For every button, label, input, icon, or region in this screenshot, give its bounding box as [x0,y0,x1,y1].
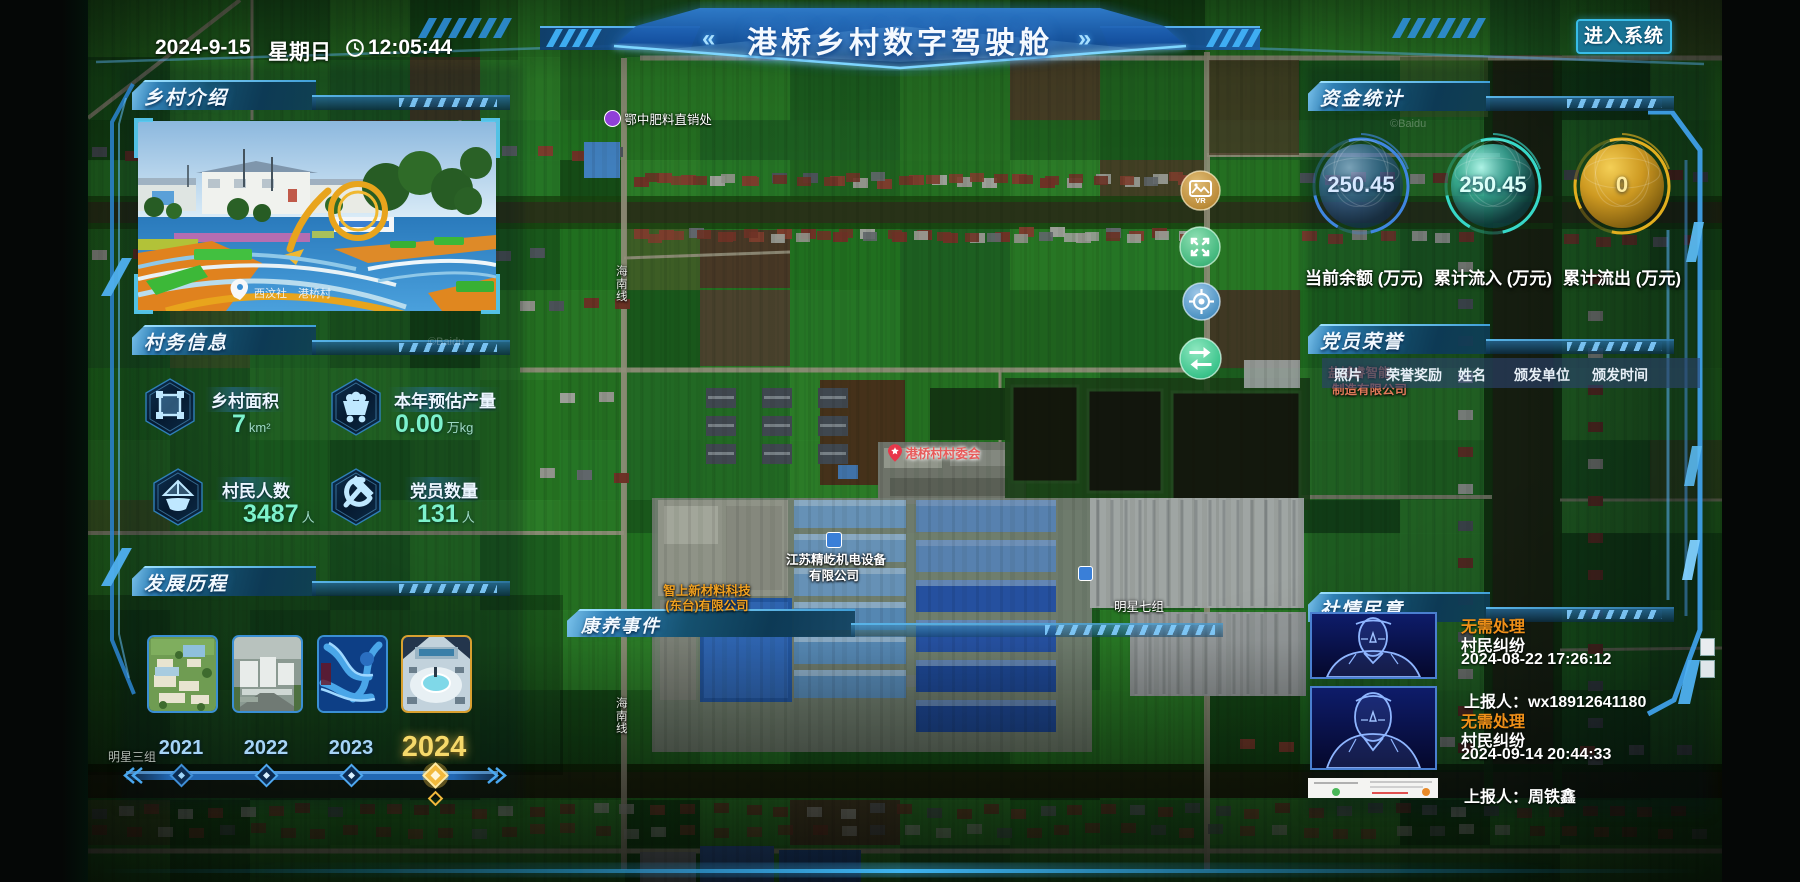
svg-text:VR: VR [1195,196,1206,205]
